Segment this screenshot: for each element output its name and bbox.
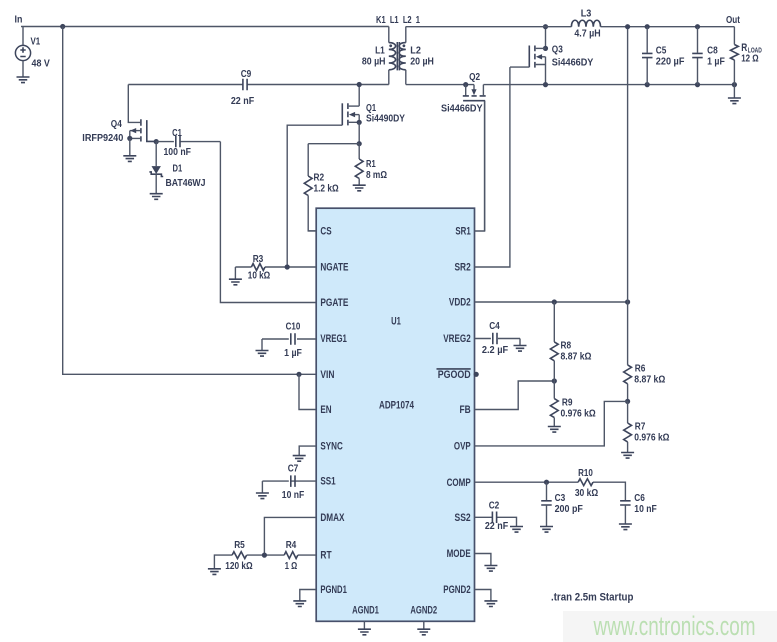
- svg-text:1 Ω: 1 Ω: [285, 561, 297, 572]
- svg-text:80 µH: 80 µH: [362, 56, 386, 67]
- svg-text:PGND1: PGND1: [320, 584, 347, 596]
- svg-text:22 nF: 22 nF: [231, 96, 254, 107]
- svg-text:Q4: Q4: [111, 119, 122, 130]
- svg-text:www.cntronics.com: www.cntronics.com: [593, 611, 756, 641]
- svg-text:1 µF: 1 µF: [707, 57, 725, 68]
- svg-text:R3: R3: [253, 254, 264, 265]
- svg-text:FB: FB: [460, 404, 471, 416]
- svg-text:D1: D1: [173, 163, 183, 174]
- svg-text:BAT46WJ: BAT46WJ: [166, 178, 206, 189]
- svg-text:C2: C2: [489, 501, 500, 512]
- svg-text:L1: L1: [375, 45, 385, 56]
- svg-text:OVP: OVP: [454, 441, 471, 453]
- svg-text:12 Ω: 12 Ω: [741, 53, 758, 64]
- svg-text:In: In: [15, 15, 23, 26]
- svg-text:VREG2: VREG2: [443, 333, 470, 345]
- svg-text:R6: R6: [635, 363, 646, 374]
- svg-text:R10: R10: [578, 468, 593, 479]
- svg-text:NGATE: NGATE: [320, 262, 348, 274]
- svg-text:R8: R8: [561, 340, 572, 351]
- svg-text:MODE: MODE: [447, 548, 471, 560]
- svg-text:2.2 µF: 2.2 µF: [482, 345, 508, 356]
- svg-text:20 µH: 20 µH: [410, 56, 434, 67]
- svg-text:1 µF: 1 µF: [284, 348, 302, 359]
- svg-text:0.976 kΩ: 0.976 kΩ: [634, 432, 669, 443]
- svg-text:R1: R1: [366, 159, 376, 170]
- svg-text:PGOOD: PGOOD: [438, 369, 471, 381]
- svg-text:C8: C8: [707, 46, 718, 57]
- svg-text:C9: C9: [241, 69, 252, 80]
- svg-text:200 pF: 200 pF: [555, 504, 583, 515]
- svg-text:1.2 kΩ: 1.2 kΩ: [314, 184, 339, 195]
- svg-text:COMP: COMP: [447, 477, 471, 489]
- svg-text:DMAX: DMAX: [320, 512, 344, 524]
- svg-text:R9: R9: [562, 397, 573, 408]
- svg-text:Out: Out: [726, 15, 740, 26]
- svg-text:8.87 kΩ: 8.87 kΩ: [634, 374, 665, 385]
- svg-text:AGND1: AGND1: [352, 604, 379, 616]
- svg-text:Si4466DY: Si4466DY: [552, 58, 594, 69]
- svg-text:SS1: SS1: [320, 476, 335, 488]
- svg-text:R7: R7: [635, 421, 646, 432]
- svg-text:RT: RT: [320, 550, 331, 562]
- svg-text:V1: V1: [31, 37, 41, 48]
- svg-text:120 kΩ: 120 kΩ: [225, 561, 252, 572]
- svg-text:0.976 kΩ: 0.976 kΩ: [561, 408, 596, 419]
- svg-text:8 mΩ: 8 mΩ: [366, 170, 387, 181]
- svg-text:220 µF: 220 µF: [656, 57, 685, 68]
- svg-text:Q3: Q3: [552, 45, 563, 56]
- svg-text:SR2: SR2: [455, 262, 471, 274]
- svg-text:C7: C7: [288, 464, 299, 475]
- svg-text:R: R: [741, 42, 747, 54]
- svg-text:SYNC: SYNC: [320, 441, 342, 453]
- svg-text:C4: C4: [489, 321, 500, 332]
- svg-text:IRFP9240: IRFP9240: [82, 133, 123, 144]
- svg-text:10 nF: 10 nF: [282, 490, 304, 501]
- svg-text:L2: L2: [410, 45, 421, 56]
- svg-text:K1 L1 L2 1: K1 L1 L2 1: [376, 15, 420, 26]
- svg-text:C5: C5: [656, 46, 667, 57]
- svg-text:PGATE: PGATE: [320, 297, 348, 309]
- svg-text:SS2: SS2: [455, 512, 471, 524]
- svg-text:R2: R2: [314, 173, 325, 184]
- svg-text:22 nF: 22 nF: [485, 521, 508, 532]
- svg-text:C6: C6: [634, 493, 645, 504]
- svg-text:C1: C1: [172, 128, 182, 139]
- svg-text:R5: R5: [234, 540, 245, 551]
- svg-text:VDD2: VDD2: [449, 297, 471, 309]
- svg-text:Si4490DY: Si4490DY: [366, 113, 405, 124]
- svg-text:CS: CS: [320, 226, 332, 238]
- svg-text:SR1: SR1: [455, 226, 470, 238]
- svg-text:L3: L3: [581, 9, 592, 20]
- svg-text:Q2: Q2: [469, 72, 480, 83]
- svg-text:EN: EN: [320, 404, 331, 416]
- svg-text:R4: R4: [286, 540, 297, 551]
- svg-text:100 nF: 100 nF: [164, 147, 191, 158]
- svg-text:U1: U1: [391, 316, 401, 328]
- svg-text:ADP1074: ADP1074: [379, 400, 415, 412]
- svg-text:.tran 2.5m Startup: .tran 2.5m Startup: [551, 591, 634, 603]
- svg-text:Si4466DY: Si4466DY: [441, 104, 483, 115]
- svg-text:4.7 µH: 4.7 µH: [574, 29, 600, 40]
- svg-text:10 kΩ: 10 kΩ: [248, 271, 270, 282]
- svg-text:48 V: 48 V: [32, 59, 50, 70]
- svg-text:8.87 kΩ: 8.87 kΩ: [561, 351, 592, 362]
- svg-text:30 kΩ: 30 kΩ: [575, 488, 598, 499]
- svg-text:AGND2: AGND2: [410, 604, 437, 616]
- svg-text:PGND2: PGND2: [443, 584, 470, 596]
- svg-text:C10: C10: [286, 322, 301, 333]
- svg-text:VREG1: VREG1: [320, 333, 347, 345]
- svg-text:C3: C3: [555, 493, 566, 504]
- svg-text:VIN: VIN: [320, 369, 334, 381]
- svg-text:10 nF: 10 nF: [634, 504, 656, 515]
